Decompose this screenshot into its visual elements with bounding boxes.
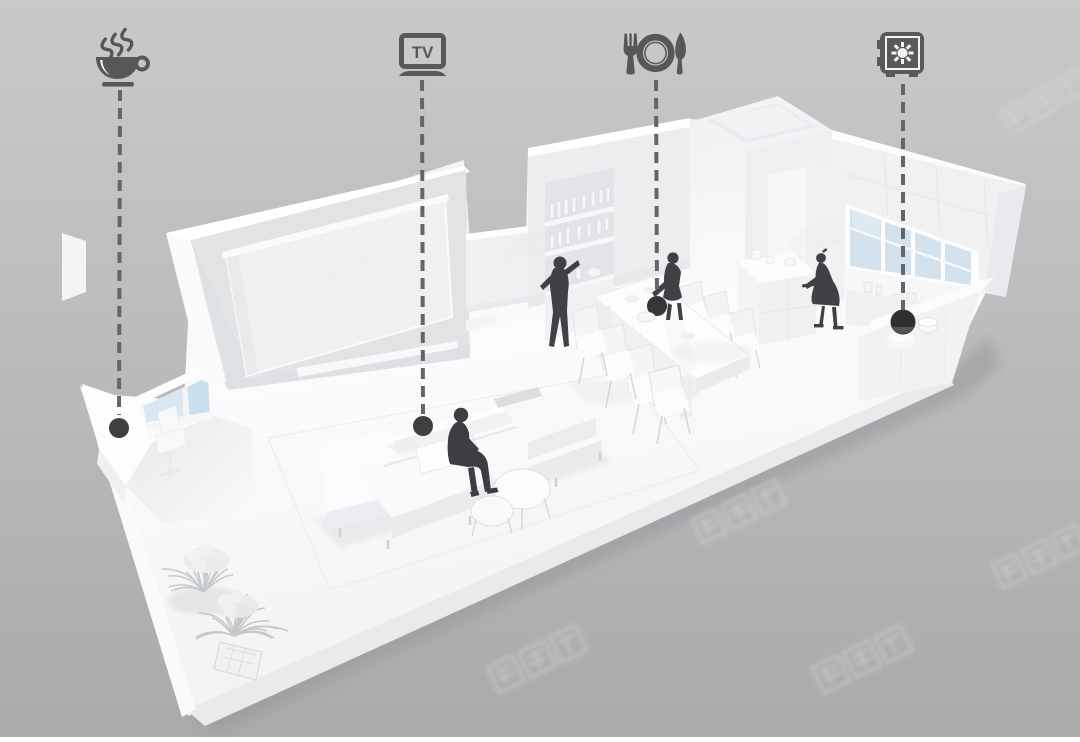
svg-text:TV: TV — [412, 43, 434, 62]
